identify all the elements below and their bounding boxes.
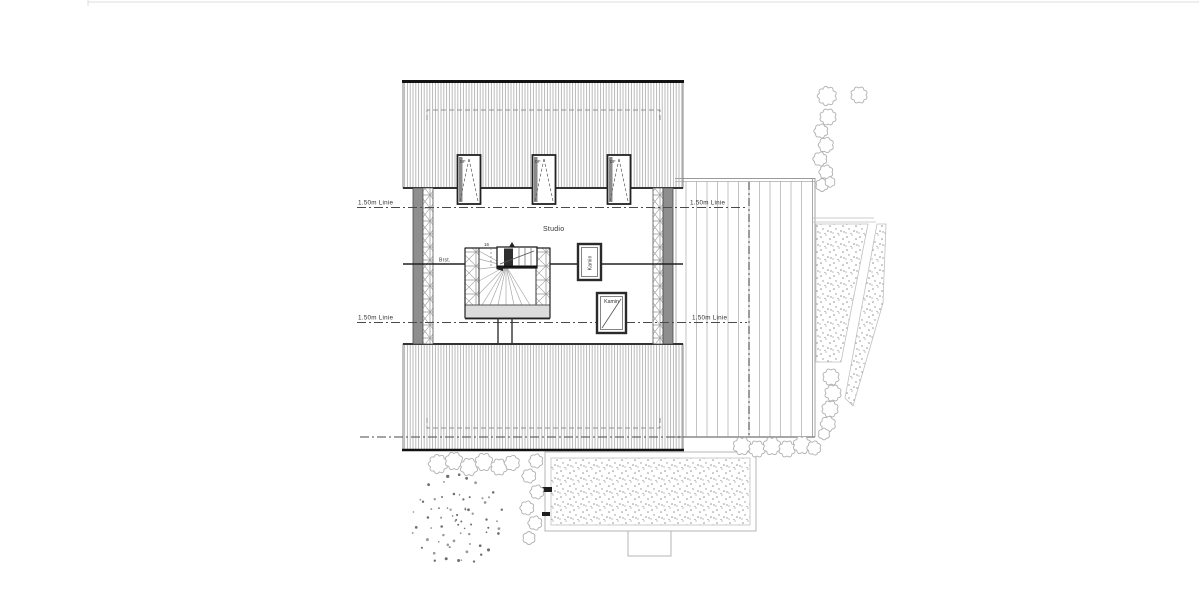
planting-dot xyxy=(465,507,466,508)
planting-dot xyxy=(480,553,482,555)
planting-dot xyxy=(427,516,430,519)
planting-dot xyxy=(433,552,436,555)
chimney-upper: Kamin xyxy=(578,244,601,280)
planting-dot xyxy=(413,511,415,513)
chimney-lower: Kamin xyxy=(597,293,626,333)
height-line-label-top-right: 1.50m Linie xyxy=(690,200,726,207)
planting-dot xyxy=(468,533,470,535)
planting-dot xyxy=(422,501,424,503)
planting-dot xyxy=(421,547,423,549)
planting-dot xyxy=(452,515,453,516)
terrace-gravel-fill xyxy=(551,458,750,525)
planting-dot xyxy=(453,540,456,543)
planting-dot xyxy=(412,532,414,534)
planting-dot xyxy=(419,499,421,501)
bush xyxy=(825,177,835,188)
parapet-label: Brst. xyxy=(439,258,451,264)
planting-dot xyxy=(481,497,483,499)
planting-dot xyxy=(453,493,456,496)
planting-dot xyxy=(455,520,456,521)
planting-dot xyxy=(426,538,429,541)
planting-dot xyxy=(447,544,450,547)
planting-dot xyxy=(447,507,448,508)
right-wall-masonry xyxy=(663,188,673,344)
left-wall-masonry xyxy=(413,188,423,344)
stair-left-wall xyxy=(465,248,479,305)
planting-dot xyxy=(498,527,501,530)
roof-window: DF xyxy=(533,155,556,204)
floor-plan-drawing: DFDFDF 1.50m Linie 1.50m Linie 1.50m Lin… xyxy=(0,0,1200,600)
planting-dot xyxy=(464,509,466,511)
planting-dot xyxy=(473,560,475,562)
planting-dot xyxy=(462,498,464,500)
height-line-label-bottom-right: 1.50m Linie xyxy=(692,315,728,322)
planting-dot xyxy=(427,483,430,486)
planting-dot xyxy=(442,534,444,536)
stair-right-wall xyxy=(536,248,550,305)
bush xyxy=(530,485,544,499)
bush xyxy=(819,428,830,440)
chimney-upper-label: Kamin xyxy=(588,256,594,271)
bush xyxy=(528,516,542,530)
roof-window: DF xyxy=(608,155,631,204)
planting-dot xyxy=(443,481,445,483)
bush xyxy=(813,152,827,166)
planting-dot xyxy=(461,559,463,561)
planting-dot xyxy=(460,521,462,523)
room-label-studio: Studio xyxy=(543,226,564,233)
planting-dot xyxy=(465,477,468,480)
planting-dot xyxy=(488,496,490,498)
height-line-label-bottom-left: 1.50m Linie xyxy=(358,315,394,322)
planting-dot xyxy=(497,532,500,535)
bush xyxy=(807,441,821,455)
planting-dot xyxy=(464,528,466,530)
stair-flight-cut-block xyxy=(504,249,513,266)
roof-window-label: DF xyxy=(460,159,466,164)
upper-roof: DFDFDF xyxy=(402,81,684,204)
roof-window: DF xyxy=(458,155,481,204)
planting-dot xyxy=(449,546,451,548)
planting-dot xyxy=(440,525,443,528)
planting-dot xyxy=(479,544,482,547)
stair-landing xyxy=(465,305,550,318)
planting-dot xyxy=(449,509,451,511)
planting-dot xyxy=(460,532,462,534)
stair-steps-count: 16 xyxy=(484,242,490,247)
planting-dot xyxy=(469,543,471,545)
planting-dot xyxy=(458,473,461,476)
chimney-lower-label: Kamin xyxy=(604,299,619,305)
planting-dot xyxy=(446,475,449,478)
planting-dot xyxy=(466,550,469,553)
lower-roof xyxy=(360,344,684,450)
roof-window-label: DF xyxy=(610,159,616,164)
planting-dot xyxy=(434,560,436,562)
planting-dot xyxy=(485,518,487,520)
left-wall-insulation xyxy=(423,188,433,344)
planting-dot xyxy=(484,501,487,504)
planting-dot xyxy=(501,509,503,511)
planting-dot xyxy=(472,513,474,515)
planting-dot xyxy=(440,517,442,519)
bush xyxy=(529,454,543,468)
terrace-wall-stub-lower xyxy=(542,512,550,516)
bush xyxy=(520,501,534,515)
floor-plan-canvas: DFDFDF 1.50m Linie 1.50m Linie 1.50m Lin… xyxy=(0,0,1200,600)
bush xyxy=(523,532,535,545)
planting-dot xyxy=(457,524,459,526)
planting-dot xyxy=(487,527,489,529)
planting-dot xyxy=(438,541,439,542)
planting-dot xyxy=(438,507,440,509)
planting-dot xyxy=(496,520,498,522)
planting-dot xyxy=(459,494,460,495)
planting-dot xyxy=(467,508,470,511)
planting-dot xyxy=(474,481,477,484)
planting-dot xyxy=(487,548,490,551)
planting-dot xyxy=(469,496,471,498)
planting-dot xyxy=(445,557,448,560)
planting-dot xyxy=(415,526,418,529)
planting-dot xyxy=(492,491,495,494)
planting-dot xyxy=(430,508,432,510)
planting-dot xyxy=(441,496,443,498)
planting-dot xyxy=(456,514,458,516)
bush xyxy=(814,124,828,138)
planting-dot xyxy=(470,523,472,525)
roof-window-label: DF xyxy=(535,159,541,164)
lower-roof-surface xyxy=(403,344,683,450)
planting-dot xyxy=(430,527,432,529)
bush xyxy=(522,469,536,483)
planting-dot xyxy=(457,559,460,562)
height-line-label-top-left: 1.50m Linie xyxy=(358,200,394,207)
planting-dot xyxy=(434,498,436,500)
right-wall-insulation xyxy=(653,188,663,344)
planting-dot xyxy=(486,531,488,533)
